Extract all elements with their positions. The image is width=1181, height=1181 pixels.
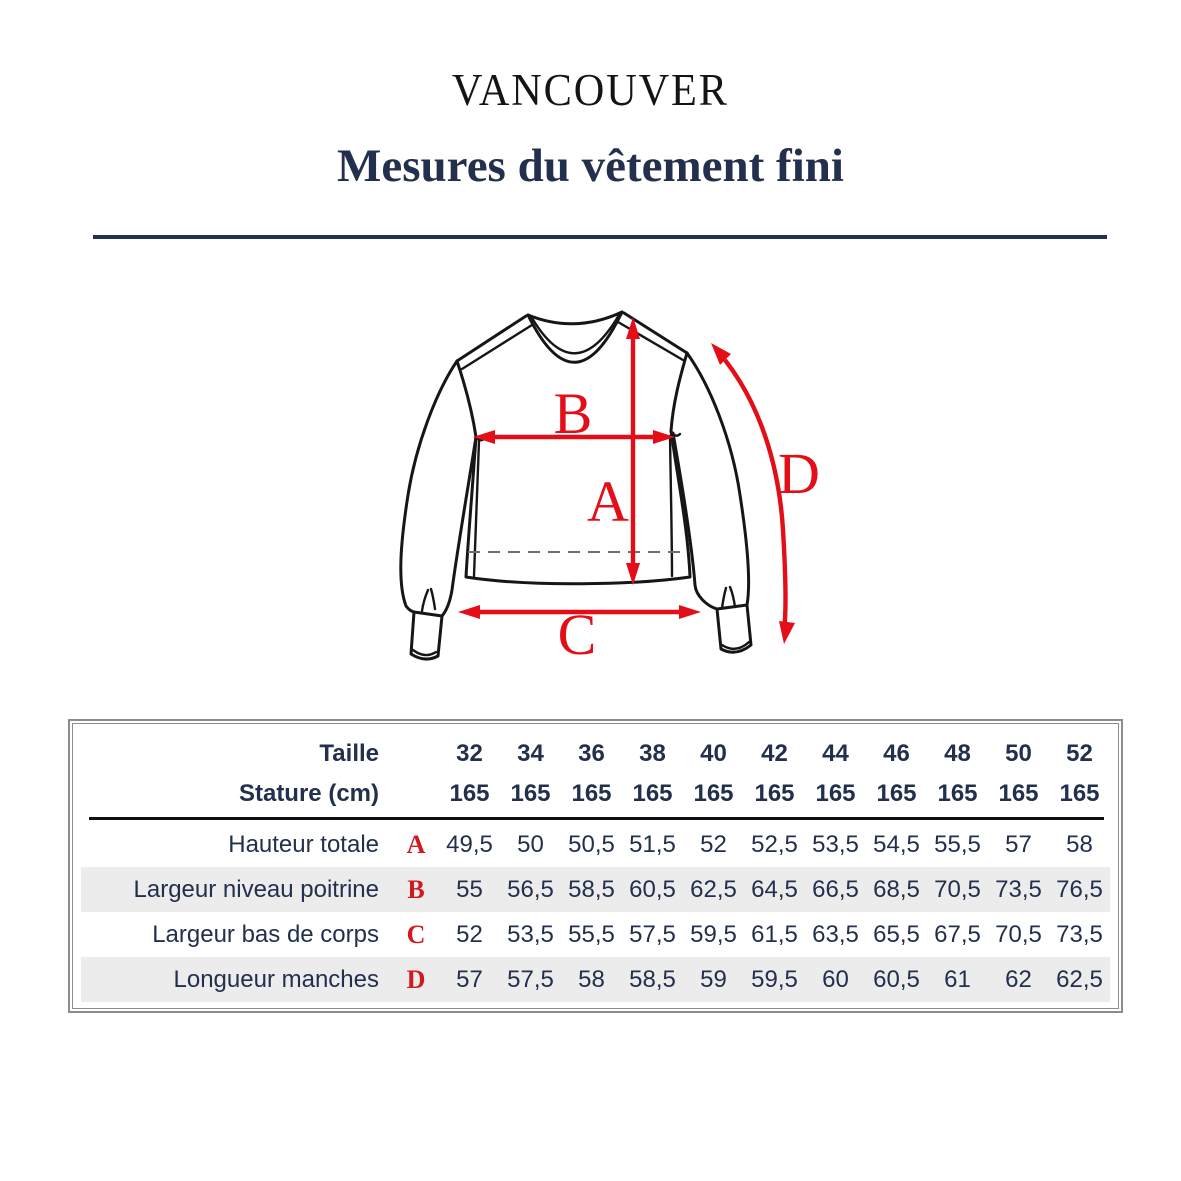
header-value-cell: 165 — [500, 780, 561, 808]
header-value-cell: 42 — [744, 740, 805, 768]
row-letter: A — [393, 830, 439, 860]
value-cell: 62,5 — [683, 876, 744, 904]
value-cell: 50 — [500, 831, 561, 859]
value-cell: 70,5 — [988, 921, 1049, 949]
row-label: Largeur bas de corps — [81, 921, 393, 949]
table-header-row: Taille3234363840424446485052 — [81, 734, 1110, 774]
value-cell: 59,5 — [744, 966, 805, 994]
value-cell: 61 — [927, 966, 988, 994]
dim-label-b: B — [554, 381, 593, 446]
header-value-cell: 32 — [439, 740, 500, 768]
header-value-cell: 46 — [866, 740, 927, 768]
value-cell: 52 — [683, 831, 744, 859]
value-cell: 57 — [439, 966, 500, 994]
header-value-cell: 165 — [561, 780, 622, 808]
value-cell: 64,5 — [744, 876, 805, 904]
value-cell: 62,5 — [1049, 966, 1110, 994]
value-cell: 56,5 — [500, 876, 561, 904]
value-cell: 63,5 — [805, 921, 866, 949]
value-cell: 67,5 — [927, 921, 988, 949]
row-label: Largeur niveau poitrine — [81, 876, 393, 904]
value-cell: 53,5 — [805, 831, 866, 859]
value-cell: 58,5 — [622, 966, 683, 994]
table-header-row: Stature (cm)1651651651651651651651651651… — [81, 774, 1110, 814]
header-label: Taille — [81, 740, 393, 768]
row-letter: B — [393, 875, 439, 905]
header-value-cell: 165 — [805, 780, 866, 808]
value-cell: 59 — [683, 966, 744, 994]
value-cell: 65,5 — [866, 921, 927, 949]
table-row: Largeur niveau poitrineB5556,558,560,562… — [81, 867, 1110, 912]
value-cell: 53,5 — [500, 921, 561, 949]
page: { "header": { "brand": "VANCOUVER", "tit… — [0, 0, 1181, 1181]
row-label: Longueur manches — [81, 966, 393, 994]
value-cell: 62 — [988, 966, 1049, 994]
header-value-cell: 165 — [439, 780, 500, 808]
value-cell: 76,5 — [1049, 876, 1110, 904]
value-cell: 52 — [439, 921, 500, 949]
value-cell: 73,5 — [1049, 921, 1110, 949]
header-value-cell: 52 — [1049, 740, 1110, 768]
garment-diagram: B A C D — [380, 290, 830, 690]
value-cell: 60,5 — [622, 876, 683, 904]
value-cell: 51,5 — [622, 831, 683, 859]
header-value-cell: 50 — [988, 740, 1049, 768]
value-cell: 57,5 — [622, 921, 683, 949]
value-cell: 61,5 — [744, 921, 805, 949]
header-value-cell: 38 — [622, 740, 683, 768]
value-cell: 57,5 — [500, 966, 561, 994]
dim-label-a: A — [587, 469, 629, 534]
value-cell: 68,5 — [866, 876, 927, 904]
size-table: Taille3234363840424446485052Stature (cm)… — [68, 719, 1123, 1013]
header-value-cell: 36 — [561, 740, 622, 768]
value-cell: 59,5 — [683, 921, 744, 949]
value-cell: 57 — [988, 831, 1049, 859]
row-letter: C — [393, 920, 439, 950]
table-row: Hauteur totaleA49,55050,551,55252,553,55… — [81, 822, 1110, 867]
value-cell: 73,5 — [988, 876, 1049, 904]
brand-title-text: VANCOUVER — [452, 68, 729, 113]
header-value-cell: 165 — [683, 780, 744, 808]
value-cell: 66,5 — [805, 876, 866, 904]
value-cell: 55,5 — [927, 831, 988, 859]
header-label: Stature (cm) — [81, 780, 393, 808]
value-cell: 52,5 — [744, 831, 805, 859]
header-value-cell: 44 — [805, 740, 866, 768]
brand-title: VANCOUVER — [0, 68, 1181, 113]
header-value-cell: 40 — [683, 740, 744, 768]
value-cell: 58,5 — [561, 876, 622, 904]
value-cell: 58 — [1049, 831, 1110, 859]
value-cell: 49,5 — [439, 831, 500, 859]
value-cell: 50,5 — [561, 831, 622, 859]
measure-arrow-a — [626, 317, 640, 585]
dim-label-d: D — [778, 441, 820, 506]
header-value-cell: 165 — [927, 780, 988, 808]
row-letter: D — [393, 965, 439, 995]
table-row: Largeur bas de corpsC5253,555,557,559,56… — [81, 912, 1110, 957]
header-value-cell: 165 — [622, 780, 683, 808]
value-cell: 60,5 — [866, 966, 927, 994]
header-value-cell: 165 — [744, 780, 805, 808]
value-cell: 60 — [805, 966, 866, 994]
table-row: Longueur manchesD5757,55858,55959,56060,… — [81, 957, 1110, 1002]
header-separator-line — [89, 817, 1104, 820]
value-cell: 70,5 — [927, 876, 988, 904]
header-value-cell: 165 — [1049, 780, 1110, 808]
header-value-cell: 165 — [988, 780, 1049, 808]
header-value-cell: 165 — [866, 780, 927, 808]
value-cell: 58 — [561, 966, 622, 994]
value-cell: 55,5 — [561, 921, 622, 949]
row-label: Hauteur totale — [81, 831, 393, 859]
value-cell: 54,5 — [866, 831, 927, 859]
size-table-inner: Taille3234363840424446485052Stature (cm)… — [72, 723, 1119, 1009]
page-title: Mesures du vêtement fini — [0, 143, 1181, 190]
title-divider — [93, 235, 1107, 239]
header-value-cell: 48 — [927, 740, 988, 768]
dim-label-c: C — [558, 602, 597, 667]
value-cell: 55 — [439, 876, 500, 904]
header-value-cell: 34 — [500, 740, 561, 768]
